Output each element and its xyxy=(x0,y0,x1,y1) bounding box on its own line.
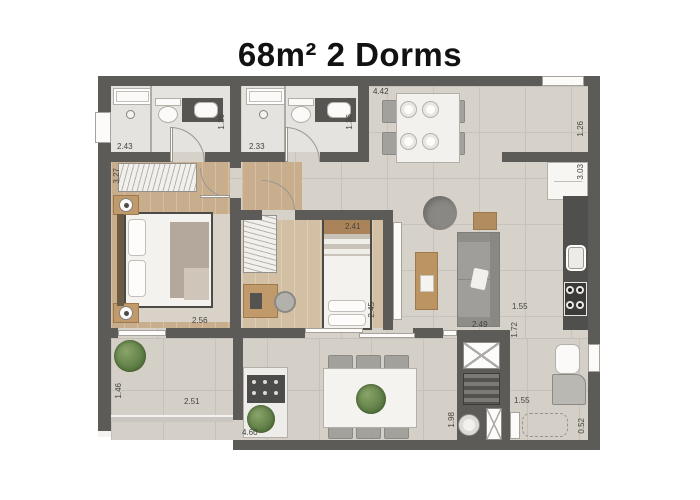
terrace-slider-panel xyxy=(305,328,363,333)
bedroom1-door-leaf xyxy=(200,195,230,198)
service-door xyxy=(510,412,520,439)
wall-entry-recess xyxy=(502,152,588,162)
wall-bedroom2-top-b xyxy=(295,210,383,220)
wall-bath2-right xyxy=(358,86,369,152)
bedroom2-wardrobe xyxy=(243,215,277,273)
desk-chair xyxy=(274,291,296,313)
bedroom2-bed xyxy=(322,218,372,330)
balcony-plant xyxy=(114,340,146,372)
place-setting xyxy=(422,101,439,118)
dim-label: 1.26 xyxy=(576,121,585,137)
grill xyxy=(247,375,285,403)
place-setting xyxy=(400,133,417,150)
stairs xyxy=(463,373,500,405)
side-table xyxy=(473,212,497,230)
kitchen-sink xyxy=(566,245,586,271)
bathroom1-door-leaf xyxy=(170,127,173,162)
bed1-headboard xyxy=(117,214,124,306)
floor-plan: 2.43 1.36 2.33 1.36 4.42 1.26 3.03 3.27 … xyxy=(95,76,607,452)
bathroom2-toilet xyxy=(291,106,311,123)
bathroom2-door-leaf xyxy=(285,127,288,162)
drying-area xyxy=(522,413,568,437)
service-window xyxy=(588,344,600,372)
lamp-icon xyxy=(119,306,133,320)
elevator xyxy=(463,342,500,369)
terrace-slider-panel xyxy=(359,333,415,338)
balcony-railing xyxy=(111,415,233,422)
bathroom1-window xyxy=(95,112,111,143)
dim-label: 3.03 xyxy=(576,164,585,180)
shaft xyxy=(486,408,502,440)
centerpiece-plant xyxy=(356,384,386,414)
wall-bedroom2-top-a xyxy=(241,210,262,220)
wall-bath1-front xyxy=(111,152,170,162)
dim-label: 4.42 xyxy=(373,87,389,96)
dim-label: 2.49 xyxy=(472,320,488,329)
wall-bedroom1-right-b xyxy=(230,198,241,328)
living-terrace-door xyxy=(443,330,457,336)
wall-top xyxy=(98,76,542,86)
bedroom1-balcony-slider xyxy=(118,330,166,336)
dim-label: 2.33 xyxy=(249,142,265,151)
terrace-sink xyxy=(458,414,480,436)
desk xyxy=(243,284,278,318)
wall-balcony-divider xyxy=(233,328,243,420)
wall-right xyxy=(588,76,600,450)
bathroom1-shower-tray xyxy=(113,88,152,105)
dim-label: 1.36 xyxy=(217,114,226,130)
dim-label: 0.52 xyxy=(577,418,586,434)
dim-label: 1.55 xyxy=(512,302,528,311)
page-title: 68m² 2 Dorms xyxy=(0,36,700,74)
wall-bedroom1-right-a xyxy=(230,162,241,168)
dim-label: 1.72 xyxy=(510,322,519,338)
washing-machine xyxy=(552,374,586,405)
bathroom2-drain-icon xyxy=(259,110,268,119)
pouf xyxy=(423,196,457,230)
wall-bedroom2-right xyxy=(383,210,393,330)
place-setting xyxy=(400,101,417,118)
bedroom1-bed xyxy=(124,212,213,308)
wall-left-cap xyxy=(98,431,111,437)
wall-bottom xyxy=(233,440,600,450)
lamp-icon xyxy=(119,198,133,212)
bathroom1-toilet-tank xyxy=(155,98,181,106)
dim-label: 1.46 xyxy=(114,383,123,399)
bathroom1-sink xyxy=(194,102,218,118)
bathroom1-drain-icon xyxy=(126,110,135,119)
dim-label: 1.36 xyxy=(345,114,354,130)
wall-terrace-c xyxy=(413,328,443,338)
entrance-door xyxy=(542,76,584,86)
dim-label: 4.60 xyxy=(242,428,258,437)
dim-label: 2.56 xyxy=(192,316,208,325)
place-setting xyxy=(422,133,439,150)
laundry-tub xyxy=(555,344,580,374)
dim-label: 2.45 xyxy=(367,302,376,318)
dim-label: 1.98 xyxy=(447,412,456,428)
dim-label: 2.41 xyxy=(345,222,361,231)
coffee-table xyxy=(415,252,438,310)
dim-label: 3.27 xyxy=(112,168,121,184)
dim-label: 2.43 xyxy=(117,142,133,151)
wall-bath-front-mid xyxy=(205,152,285,162)
dim-label: 2.51 xyxy=(184,397,200,406)
wall-terrace-a xyxy=(111,328,118,338)
stove xyxy=(564,282,587,316)
wall-bath-divider xyxy=(230,86,241,152)
bathroom1-shower-glass xyxy=(150,86,152,152)
bathroom2-toilet-tank xyxy=(288,98,314,106)
dim-label: 1.55 xyxy=(514,396,530,405)
bedroom2-sliding-door-panel xyxy=(393,222,402,320)
bathroom1-toilet xyxy=(158,106,178,123)
bedroom1-wardrobe xyxy=(118,163,197,192)
sofa xyxy=(457,232,500,327)
bathroom2-shower-tray xyxy=(246,88,285,105)
wall-bath2-front xyxy=(320,152,369,162)
